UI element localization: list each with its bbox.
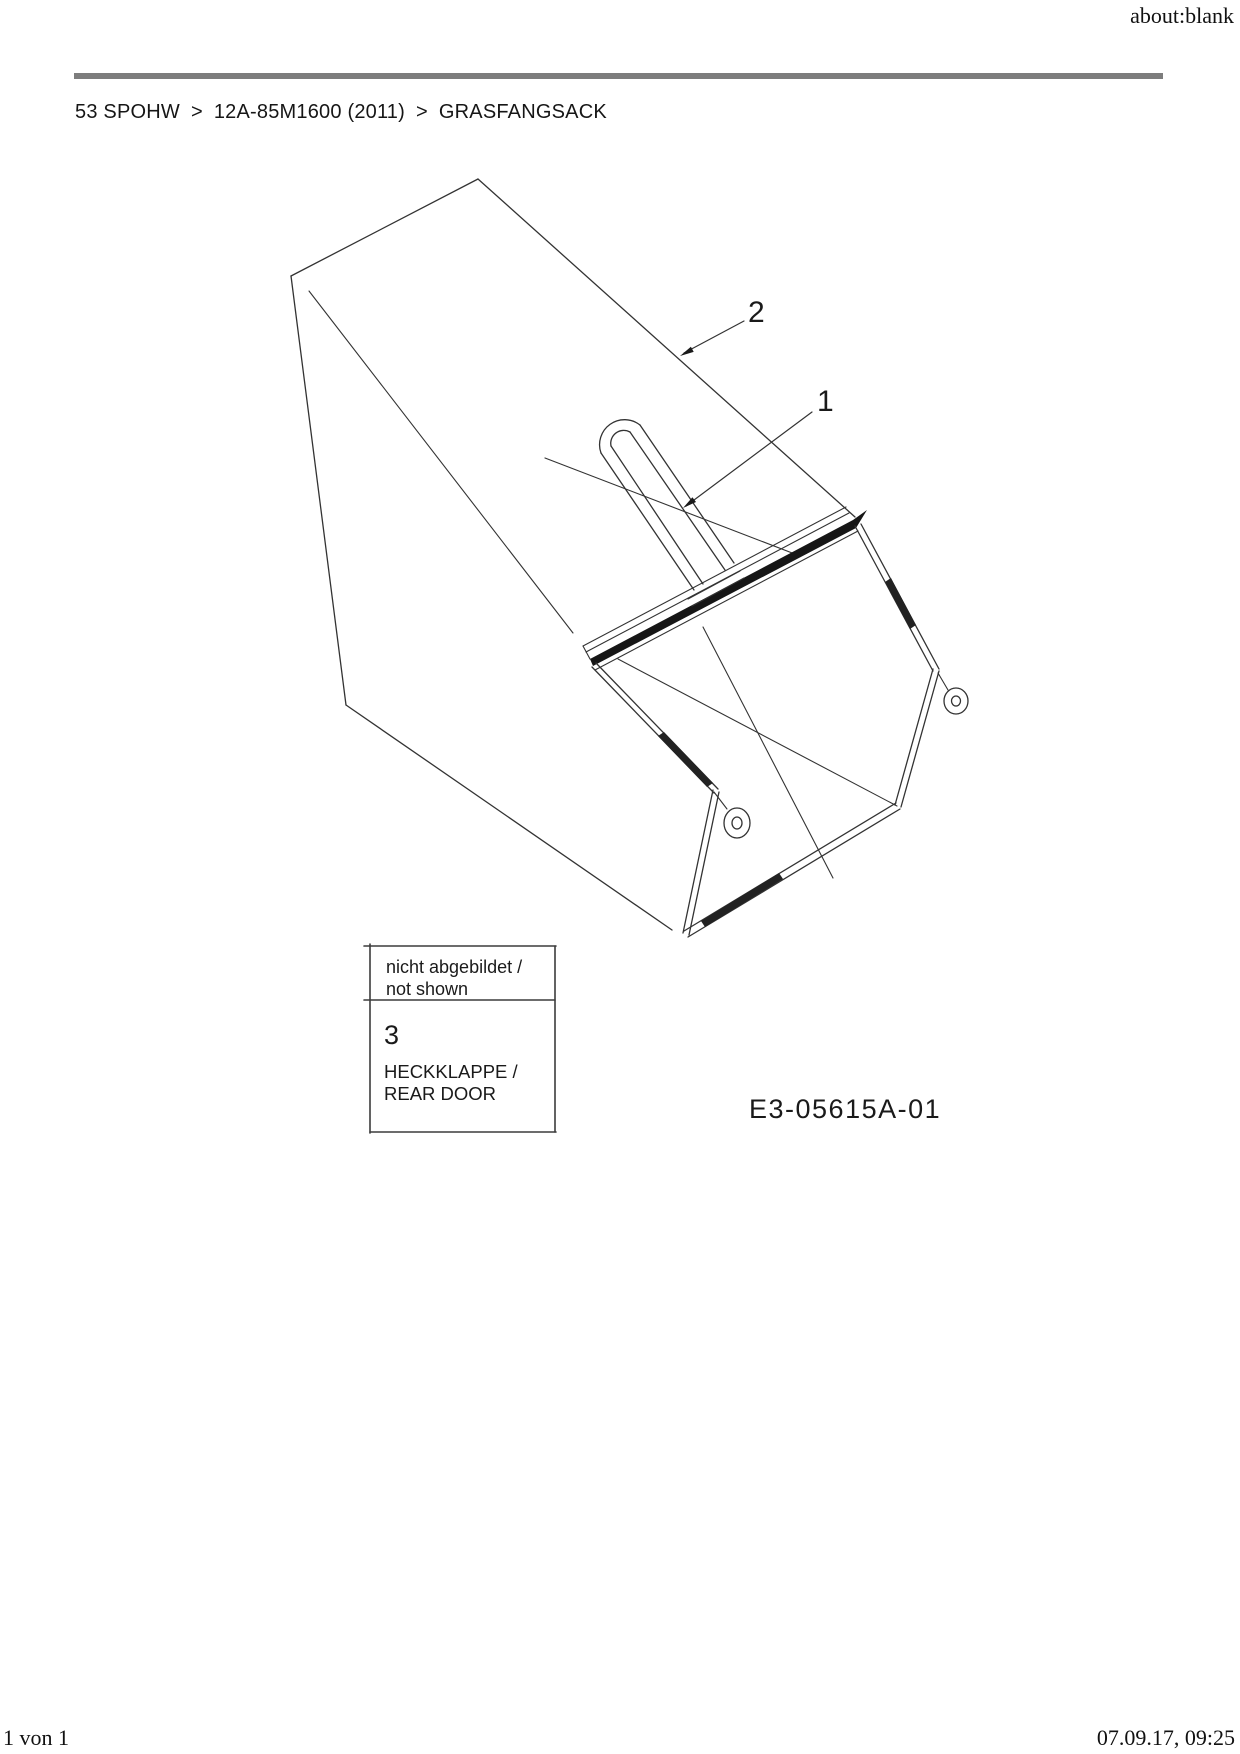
part-2-leader-arrow bbox=[680, 347, 694, 356]
callout-part-name-en: REAR DOOR bbox=[384, 1083, 496, 1104]
bag-top-left-edge bbox=[291, 179, 478, 276]
callout-item-number: 3 bbox=[384, 1020, 399, 1050]
frame-sleeve-right bbox=[885, 578, 916, 629]
crossbar-end-cap bbox=[583, 646, 590, 659]
frame-lower-right-tube-inner bbox=[895, 669, 933, 805]
bag-bottom-edge bbox=[346, 705, 672, 930]
frame-inner-rim-line-2 bbox=[703, 627, 833, 878]
callout-part-name-de: HECKKLAPPE / bbox=[384, 1061, 519, 1082]
handle-right-leg-inner bbox=[630, 432, 725, 570]
part-1-leader-line bbox=[686, 412, 812, 506]
bag-frame bbox=[583, 507, 939, 937]
part-label-2: 2 bbox=[748, 296, 765, 329]
drawing-number: E3-05615A-01 bbox=[749, 1094, 941, 1124]
handle-cap-inner bbox=[611, 430, 630, 446]
frame-bottom-tube-inner bbox=[684, 803, 896, 931]
bag-handle bbox=[600, 420, 744, 606]
not-shown-callout-box: nicht abgebildet / not shown 3 HECKKLAPP… bbox=[364, 944, 556, 1133]
frame-crossbar bbox=[590, 510, 867, 666]
part-2-leader-line bbox=[684, 321, 744, 353]
callout-not-shown-de: nicht abgebildet / bbox=[386, 957, 522, 977]
printed-page: about:blank 53 SPOHW>12A-85M1600 (2011)>… bbox=[0, 0, 1240, 1754]
crossbar-channel-line-2 bbox=[583, 507, 846, 646]
bag-left-edge bbox=[291, 276, 346, 705]
frame-sleeve-left bbox=[658, 732, 713, 787]
right-hook-inner bbox=[952, 696, 961, 706]
bag-top-right-edge bbox=[478, 179, 855, 517]
frame-lower-left-tube-outer bbox=[683, 790, 713, 933]
footer-page-count: 1 von 1 bbox=[3, 1725, 69, 1751]
right-hook-outer bbox=[944, 688, 968, 714]
callout-not-shown-en: not shown bbox=[386, 979, 468, 999]
parts-diagram-canvas: 2 1 nicht abgebildet / not shown 3 HECKK… bbox=[0, 0, 1240, 1754]
left-clip-outer bbox=[724, 808, 750, 838]
frame-lower-right-tube-outer bbox=[901, 671, 939, 807]
part-callouts: 2 1 bbox=[680, 296, 834, 508]
right-hook-arm bbox=[938, 673, 948, 690]
handle-right-leg-outer bbox=[640, 425, 734, 563]
handle-left-leg-inner bbox=[611, 446, 703, 584]
handle-cap-outer bbox=[600, 420, 640, 453]
frame-clips bbox=[714, 673, 968, 838]
bag-fold-line bbox=[309, 291, 573, 633]
handle-left-leg-outer bbox=[601, 453, 694, 590]
part-label-1: 1 bbox=[817, 385, 834, 418]
left-clip-inner bbox=[732, 817, 742, 829]
footer-timestamp: 07.09.17, 09:25 bbox=[1097, 1725, 1235, 1751]
frame-sleeve-bottom bbox=[701, 873, 783, 927]
